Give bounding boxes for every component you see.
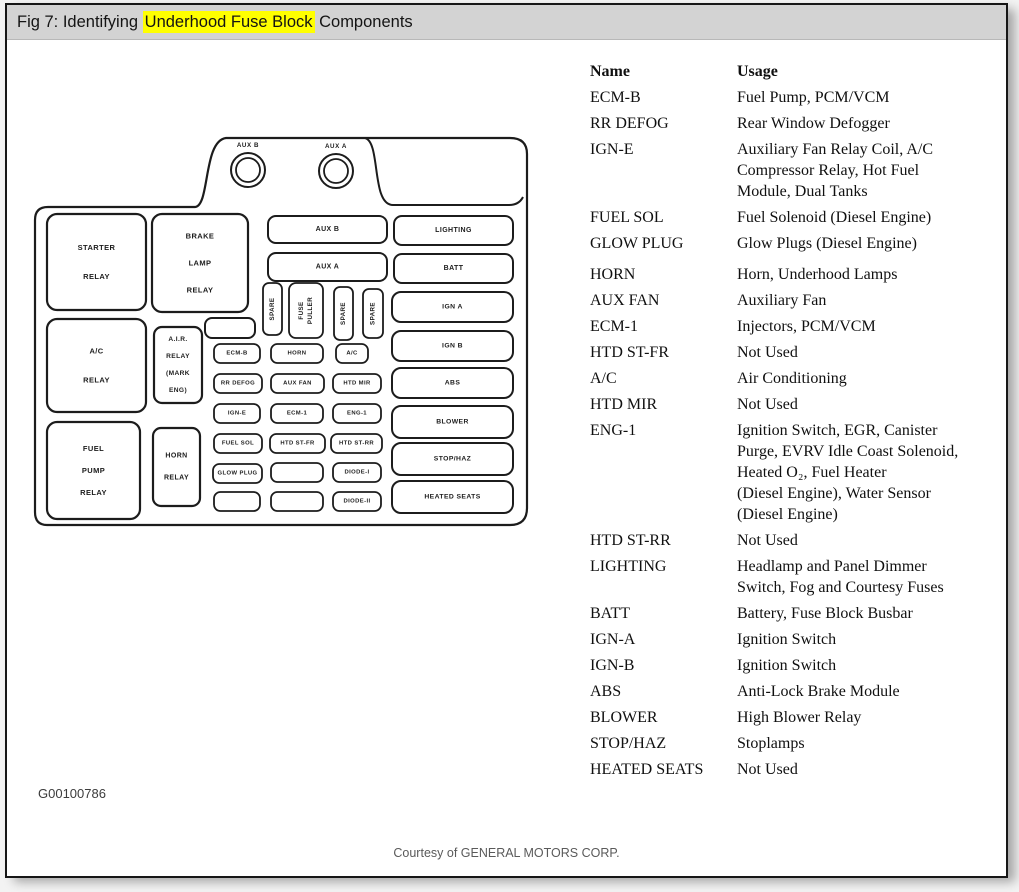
fuse-name: ECM-1	[590, 316, 737, 337]
svg-text:RELAY: RELAY	[80, 488, 107, 497]
svg-text:ECM-B: ECM-B	[226, 351, 247, 357]
fuse-row: STOP/HAZStoplamps	[590, 733, 958, 754]
svg-text:PULLER: PULLER	[307, 297, 314, 324]
fuse-box-spare: SPARE	[334, 287, 353, 340]
fuse-row: LIGHTINGHeadlamp and Panel DimmerSwitch,…	[590, 556, 958, 598]
fuse-usage: Ignition Switch	[737, 655, 836, 676]
fuse-name: BATT	[590, 603, 737, 624]
title-suffix: Components	[315, 13, 413, 31]
svg-text:HTD ST-FR: HTD ST-FR	[280, 441, 315, 447]
fuse-box-spare: SPARE	[363, 289, 383, 338]
svg-text:AUX B: AUX B	[316, 226, 340, 233]
fuse-box-brake-lamp-relay: BRAKELAMPRELAY	[152, 214, 248, 312]
fuse-box-horn-relay: HORNRELAY	[153, 428, 200, 506]
fuse-row: RR DEFOGRear Window Defogger	[590, 113, 958, 134]
fuse-usage: Rear Window Defogger	[737, 113, 890, 134]
fuse-row: FUEL SOLFuel Solenoid (Diesel Engine)	[590, 207, 958, 228]
svg-text:SPARE: SPARE	[340, 302, 347, 325]
svg-text:A/C: A/C	[89, 347, 103, 356]
fuse-box-batt: BATT	[394, 254, 513, 283]
fuse-box-blank	[271, 463, 323, 482]
fuse-box-htd-st-rr: HTD ST-RR	[331, 434, 382, 453]
svg-text:HTD MIR: HTD MIR	[343, 381, 371, 387]
svg-text:PUMP: PUMP	[82, 466, 105, 475]
fuse-block-diagram: AUX BAUX ASTARTERRELAYBRAKELAMPRELAYA/CR…	[30, 130, 535, 532]
fuse-box-diode-ii: DIODE-II	[333, 492, 381, 511]
svg-text:DIODE-I: DIODE-I	[344, 470, 369, 476]
fuse-usage: Headlamp and Panel DimmerSwitch, Fog and…	[737, 556, 944, 598]
fuse-box-eng-1: ENG-1	[333, 404, 381, 423]
svg-text:RELAY: RELAY	[83, 272, 110, 281]
fuse-box-aux-a: AUX A	[268, 253, 387, 281]
fuse-box-fuel-sol: FUEL SOL	[214, 434, 262, 453]
fuse-box-glow-plug: GLOW PLUG	[213, 464, 262, 483]
fuse-box-a-i-r-relay-mark-eng: A.I.R.RELAY(MARKENG)	[154, 327, 202, 403]
fuse-box-horn: HORN	[271, 344, 323, 363]
fuse-row: BATTBattery, Fuse Block Busbar	[590, 603, 958, 624]
fuse-row: AUX FANAuxiliary Fan	[590, 290, 958, 311]
fuse-table-header: Name Usage	[590, 61, 958, 82]
fuse-row: GLOW PLUGGlow Plugs (Diesel Engine)	[590, 233, 958, 254]
figure-title: Fig 7: Identifying Underhood Fuse Block …	[17, 13, 413, 32]
fuse-name: HORN	[590, 264, 737, 285]
svg-text:IGN-E: IGN-E	[228, 411, 246, 417]
svg-text:BRAKE: BRAKE	[186, 232, 215, 241]
svg-text:STOP/HAZ: STOP/HAZ	[434, 456, 471, 463]
fuse-name: STOP/HAZ	[590, 733, 737, 754]
fuse-name: HEATED SEATS	[590, 759, 737, 780]
svg-text:RR DEFOG: RR DEFOG	[221, 381, 255, 387]
fuse-name: HTD ST-RR	[590, 530, 737, 551]
fuse-row: IGN-EAuxiliary Fan Relay Coil, A/CCompre…	[590, 139, 958, 202]
fuse-table-header-usage: Usage	[737, 61, 778, 82]
fuse-box-ign-a: IGN A	[392, 292, 513, 322]
fuse-table-header-name: Name	[590, 61, 737, 82]
svg-text:RELAY: RELAY	[164, 475, 189, 482]
fuse-box-spare: SPARE	[263, 283, 282, 335]
fuse-box-ecm-b: ECM-B	[214, 344, 260, 363]
title-highlight: Underhood Fuse Block	[143, 11, 315, 33]
fuse-name: A/C	[590, 368, 737, 389]
fuse-box-ecm-1: ECM-1	[271, 404, 323, 423]
svg-text:HORN: HORN	[165, 453, 187, 460]
fuse-box-a-c-relay: A/CRELAY	[47, 319, 146, 412]
svg-text:HEATED SEATS: HEATED SEATS	[424, 494, 480, 501]
fuse-usage: Anti-Lock Brake Module	[737, 681, 900, 702]
svg-text:LIGHTING: LIGHTING	[435, 227, 472, 234]
svg-text:IGN B: IGN B	[442, 343, 463, 350]
fuse-box-fuel-pump-relay: FUELPUMPRELAY	[47, 422, 140, 519]
figure-content: AUX BAUX ASTARTERRELAYBRAKELAMPRELAYA/CR…	[7, 40, 1006, 875]
fuse-usage: Air Conditioning	[737, 368, 847, 389]
fuse-block-tab-divider	[365, 138, 523, 205]
fuse-usage: Not Used	[737, 530, 798, 551]
fuse-usage: Ignition Switch, EGR, CanisterPurge, EVR…	[737, 420, 958, 525]
svg-text:HORN: HORN	[288, 351, 307, 357]
fuse-usage: High Blower Relay	[737, 707, 861, 728]
fuse-box-ign-b: IGN B	[392, 331, 513, 361]
svg-text:ENG): ENG)	[169, 387, 187, 394]
svg-text:SPARE: SPARE	[370, 302, 377, 325]
svg-text:FUEL: FUEL	[83, 444, 104, 453]
svg-text:RELAY: RELAY	[83, 376, 110, 385]
fuse-row: ECM-BFuel Pump, PCM/VCM	[590, 87, 958, 108]
svg-text:AUX A: AUX A	[316, 264, 340, 271]
svg-text:DIODE-II: DIODE-II	[343, 499, 370, 505]
tower-stud-aux-b: AUX B	[231, 142, 265, 187]
fuse-row: HTD MIRNot Used	[590, 394, 958, 415]
fuse-box-lighting: LIGHTING	[394, 216, 513, 245]
fuse-name: IGN-A	[590, 629, 737, 650]
fuse-usage: Auxiliary Fan Relay Coil, A/CCompressor …	[737, 139, 933, 202]
svg-text:SPARE: SPARE	[269, 298, 276, 321]
fuse-box-rr-defog: RR DEFOG	[214, 374, 262, 393]
tower-stud-aux-a: AUX A	[319, 143, 353, 188]
svg-text:FUSE: FUSE	[298, 301, 305, 319]
fuse-name: IGN-B	[590, 655, 737, 676]
svg-text:A.I.R.: A.I.R.	[168, 336, 187, 343]
fuse-name: GLOW PLUG	[590, 233, 737, 254]
svg-text:FUEL SOL: FUEL SOL	[222, 441, 254, 447]
fuse-usage: Auxiliary Fan	[737, 290, 826, 311]
svg-text:IGN A: IGN A	[442, 304, 463, 311]
fuse-usage: Fuel Pump, PCM/VCM	[737, 87, 889, 108]
fuse-row: ABSAnti-Lock Brake Module	[590, 681, 958, 702]
svg-text:STARTER: STARTER	[78, 243, 116, 252]
fuse-box-fuse-puller: FUSEPULLER	[289, 283, 323, 338]
fuse-box-diode-i: DIODE-I	[333, 463, 381, 482]
fuse-row: BLOWERHigh Blower Relay	[590, 707, 958, 728]
fuse-name: IGN-E	[590, 139, 737, 202]
fuse-box-stop-haz: STOP/HAZ	[392, 443, 513, 475]
figure-titlebar: Fig 7: Identifying Underhood Fuse Block …	[7, 5, 1006, 40]
fuse-usage: Stoplamps	[737, 733, 805, 754]
svg-text:HTD ST-RR: HTD ST-RR	[339, 441, 374, 447]
figure-window: Fig 7: Identifying Underhood Fuse Block …	[5, 3, 1008, 878]
svg-text:LAMP: LAMP	[189, 259, 212, 268]
fuse-name: AUX FAN	[590, 290, 737, 311]
fuse-box-blank	[271, 492, 323, 511]
fuse-name: ECM-B	[590, 87, 737, 108]
fuse-box-abs: ABS	[392, 368, 513, 398]
fuse-box-aux-b: AUX B	[268, 216, 387, 243]
svg-text:BATT: BATT	[444, 265, 464, 272]
fuse-name: HTD MIR	[590, 394, 737, 415]
fuse-usage-table: Name Usage ECM-BFuel Pump, PCM/VCMRR DEF…	[590, 61, 958, 785]
svg-text:A/C: A/C	[346, 351, 358, 357]
fuse-usage: Fuel Solenoid (Diesel Engine)	[737, 207, 931, 228]
fuse-name: FUEL SOL	[590, 207, 737, 228]
page-background: Fig 7: Identifying Underhood Fuse Block …	[0, 0, 1019, 892]
fuse-row: HEATED SEATSNot Used	[590, 759, 958, 780]
fuse-usage: Not Used	[737, 342, 798, 363]
svg-text:AUX FAN: AUX FAN	[283, 381, 312, 387]
svg-text:ECM-1: ECM-1	[287, 411, 308, 417]
fuse-usage: Not Used	[737, 394, 798, 415]
fuse-row: HORNHorn, Underhood Lamps	[590, 264, 958, 285]
fuse-box-htd-st-fr: HTD ST-FR	[270, 434, 325, 453]
fuse-box-htd-mir: HTD MIR	[333, 374, 381, 393]
fuse-name: HTD ST-FR	[590, 342, 737, 363]
fuse-name: LIGHTING	[590, 556, 737, 598]
fuse-box-blank	[205, 318, 255, 338]
svg-text:AUX A: AUX A	[325, 143, 347, 150]
fuse-usage: Glow Plugs (Diesel Engine)	[737, 233, 917, 254]
fuse-usage: Horn, Underhood Lamps	[737, 264, 897, 285]
svg-text:(MARK: (MARK	[166, 370, 190, 377]
svg-text:GLOW PLUG: GLOW PLUG	[218, 471, 258, 477]
fuse-row: A/CAir Conditioning	[590, 368, 958, 389]
fuse-box-ign-e: IGN-E	[214, 404, 260, 423]
fuse-usage: Battery, Fuse Block Busbar	[737, 603, 913, 624]
fuse-row: IGN-AIgnition Switch	[590, 629, 958, 650]
fuse-row: IGN-BIgnition Switch	[590, 655, 958, 676]
fuse-usage: Ignition Switch	[737, 629, 836, 650]
fuse-box-a-c: A/C	[336, 344, 368, 363]
fuse-box-starter-relay: STARTERRELAY	[47, 214, 146, 310]
fuse-box-blank	[214, 492, 260, 511]
svg-text:ENG-1: ENG-1	[347, 411, 367, 417]
fuse-row: ECM-1Injectors, PCM/VCM	[590, 316, 958, 337]
fuse-box-aux-fan: AUX FAN	[271, 374, 324, 393]
fuse-box-blower: BLOWER	[392, 406, 513, 438]
fuse-name: ENG-1	[590, 420, 737, 525]
fuse-row: HTD ST-FRNot Used	[590, 342, 958, 363]
courtesy-note: Courtesy of GENERAL MOTORS CORP.	[7, 846, 1006, 860]
title-prefix: Fig 7: Identifying	[17, 13, 143, 31]
svg-text:AUX B: AUX B	[237, 142, 259, 149]
fuse-name: RR DEFOG	[590, 113, 737, 134]
svg-text:RELAY: RELAY	[187, 286, 214, 295]
fuse-name: ABS	[590, 681, 737, 702]
fuse-row: HTD ST-RRNot Used	[590, 530, 958, 551]
fuse-row: ENG-1Ignition Switch, EGR, CanisterPurge…	[590, 420, 958, 525]
figure-id: G00100786	[38, 786, 106, 801]
fuse-usage: Not Used	[737, 759, 798, 780]
svg-text:ABS: ABS	[445, 380, 461, 387]
fuse-name: BLOWER	[590, 707, 737, 728]
fuse-usage: Injectors, PCM/VCM	[737, 316, 876, 337]
fuse-box-heated-seats: HEATED SEATS	[392, 481, 513, 513]
svg-text:BLOWER: BLOWER	[436, 419, 469, 426]
svg-text:RELAY: RELAY	[166, 353, 190, 360]
